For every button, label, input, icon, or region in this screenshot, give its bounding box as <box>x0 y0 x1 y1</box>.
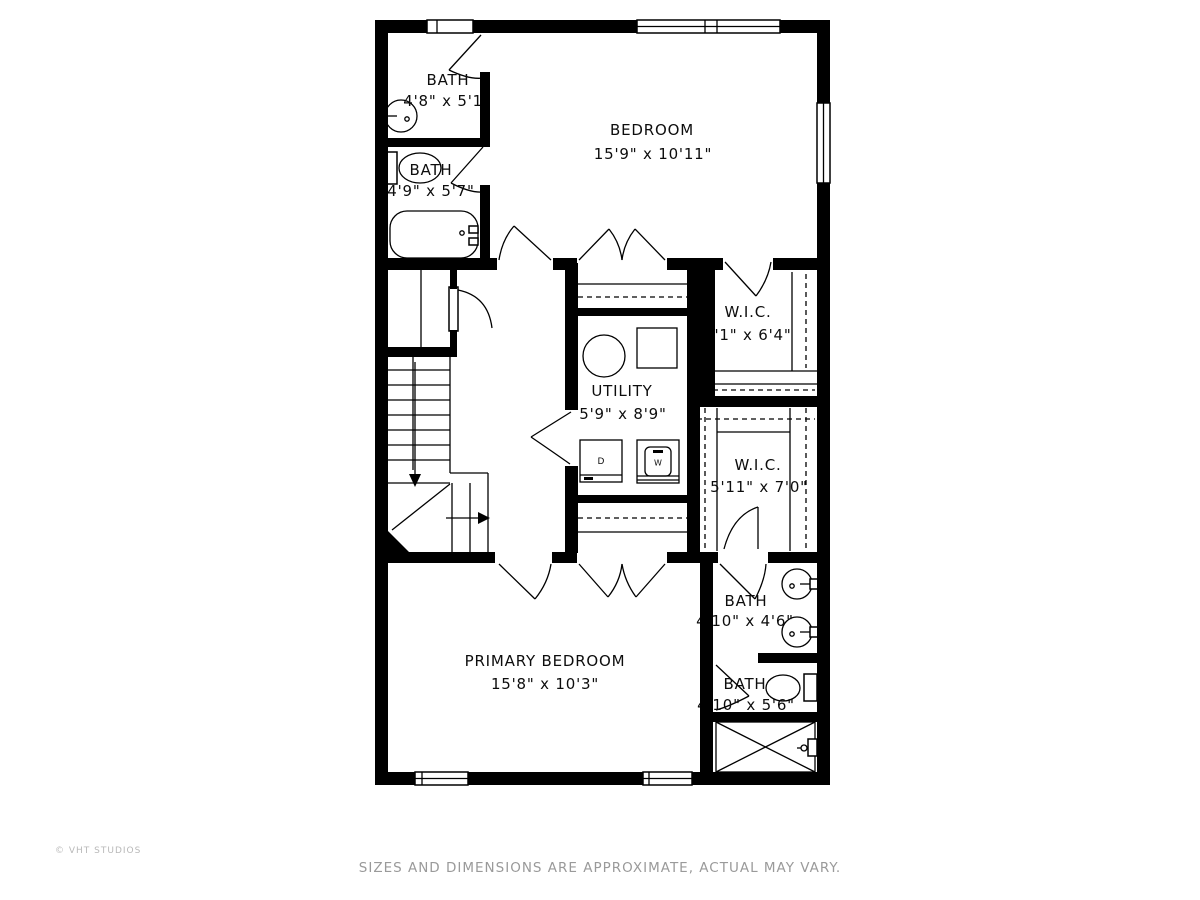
primary-window-left <box>415 772 468 785</box>
disclaimer-text: SIZES AND DIMENSIONS ARE APPROXIMATE, AC… <box>0 860 1200 876</box>
walls <box>375 20 830 785</box>
bedroom-right-window <box>817 103 830 183</box>
floor-plan-walls <box>0 0 1200 900</box>
bath1-window <box>427 20 473 33</box>
floor-plan: BATH 4'8" x 5'1" BATH 4'9" x 5'7" BEDROO… <box>0 0 1200 900</box>
primary-window-right <box>643 772 692 785</box>
studio-credit: © VHT STUDIOS <box>55 846 141 856</box>
bedroom-top-window <box>637 20 780 33</box>
